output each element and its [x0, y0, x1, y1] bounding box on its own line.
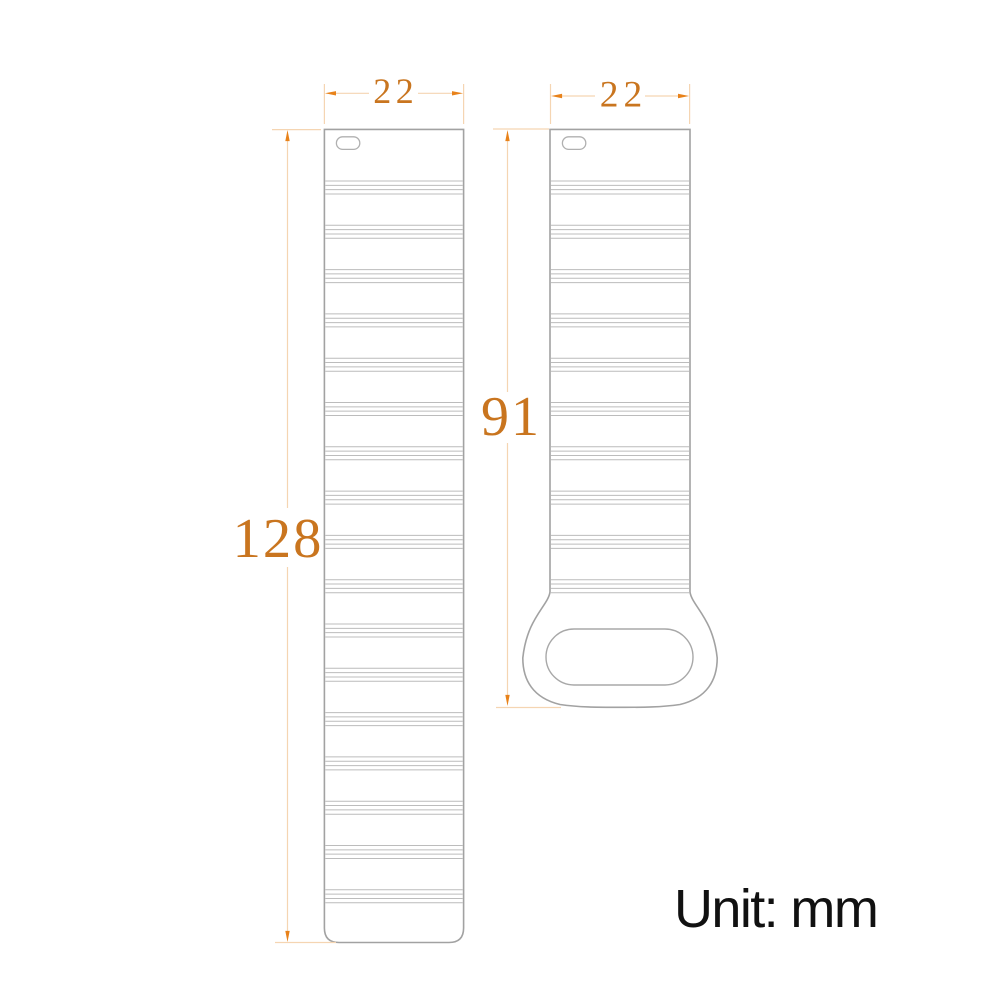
svg-text:22: 22: [373, 71, 418, 111]
svg-text:91: 91: [481, 386, 541, 448]
svg-text:Unit: mm: Unit: mm: [674, 879, 877, 939]
svg-text:128: 128: [233, 508, 324, 570]
svg-text:22: 22: [600, 75, 648, 116]
